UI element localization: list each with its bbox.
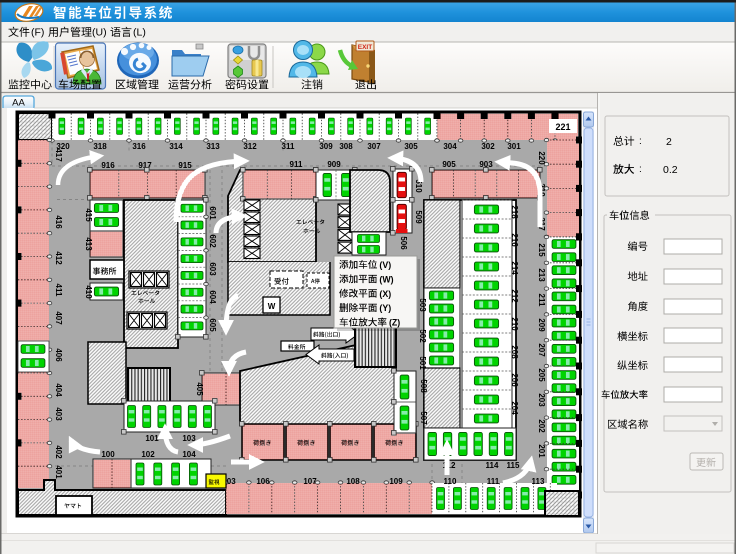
svg-text:211: 211 [537,294,546,307]
svg-text:604: 604 [208,290,217,304]
svg-text:218: 218 [510,205,519,219]
svg-text::: : [639,164,642,175]
svg-text:202: 202 [537,419,546,433]
svg-text:605: 605 [208,318,217,332]
svg-text:417: 417 [54,148,63,162]
svg-text:411: 411 [54,284,63,297]
svg-text:204: 204 [510,401,519,415]
svg-text:(F): (F) [31,27,44,39]
svg-text:312: 312 [243,142,257,151]
svg-text:212: 212 [510,289,519,303]
svg-text:220: 220 [537,151,546,165]
svg-text:410: 410 [84,285,93,299]
svg-text:405: 405 [195,382,204,396]
svg-text:404: 404 [54,383,63,397]
svg-text:416: 416 [54,215,63,229]
svg-text:201: 201 [537,444,546,458]
svg-text:305: 305 [404,142,418,151]
svg-text:203: 203 [537,393,546,407]
svg-text:502: 502 [418,329,427,343]
svg-text:406: 406 [54,348,63,362]
svg-text:(Z): (Z) [389,318,400,328]
svg-text:(V): (V) [379,260,391,270]
svg-text:401: 401 [54,465,63,479]
svg-text:508: 508 [419,379,428,393]
svg-text:W: W [268,302,276,311]
svg-text:221: 221 [555,122,570,132]
svg-text:506: 506 [399,236,408,250]
svg-text:(Y): (Y) [379,303,391,313]
svg-text:100: 100 [101,450,115,459]
svg-text:909: 909 [327,160,341,169]
svg-text:205: 205 [537,368,546,382]
svg-text:216: 216 [510,233,519,247]
svg-text:314: 314 [169,142,183,151]
svg-text:413: 413 [84,237,93,251]
svg-text:(U): (U) [92,27,107,39]
svg-text:104: 104 [182,450,196,459]
svg-text:509: 509 [414,210,423,224]
svg-text:302: 302 [481,142,495,151]
svg-text:602: 602 [208,234,217,248]
svg-text:603: 603 [208,262,217,276]
svg-text:102: 102 [141,450,155,459]
svg-text:214: 214 [510,261,519,275]
svg-text:213: 213 [537,268,546,282]
svg-text:206: 206 [510,373,519,387]
svg-text:903: 903 [479,160,493,169]
svg-text:210: 210 [510,317,519,331]
svg-text:110: 110 [444,477,457,486]
svg-text:407: 407 [54,311,63,325]
svg-text:318: 318 [93,142,107,151]
svg-text:103: 103 [182,434,196,443]
svg-text:215: 215 [537,243,546,257]
svg-text:2: 2 [666,136,672,148]
svg-text:507: 507 [419,411,428,425]
svg-text:301: 301 [507,142,521,151]
svg-text:313: 313 [206,142,220,151]
svg-text::: : [639,136,642,147]
svg-text:209: 209 [537,318,546,332]
svg-text:106: 106 [256,477,270,486]
svg-text:115: 115 [507,461,520,470]
svg-text:415: 415 [84,208,93,222]
svg-text:EXIT: EXIT [358,44,372,51]
svg-text:911: 911 [290,160,303,169]
svg-text:(X): (X) [379,289,391,299]
svg-text:412: 412 [54,251,63,265]
svg-text:601: 601 [208,206,217,220]
svg-text:316: 316 [132,142,146,151]
svg-text:AA: AA [12,98,25,109]
svg-text:(L): (L) [133,27,146,39]
svg-text:114: 114 [486,461,499,470]
svg-text:308: 308 [339,142,353,151]
svg-text:101: 101 [145,434,159,443]
svg-text:113: 113 [532,477,545,486]
svg-text:402: 402 [54,445,63,459]
svg-text:916: 916 [101,161,115,170]
svg-text:108: 108 [346,477,360,486]
svg-text:311: 311 [282,142,295,151]
svg-text:307: 307 [367,142,381,151]
svg-text:208: 208 [510,345,519,359]
svg-text:107: 107 [303,477,317,486]
svg-text:207: 207 [537,343,546,357]
svg-text:111: 111 [487,477,500,486]
svg-text:109: 109 [389,477,403,486]
svg-text:(W): (W) [379,274,393,284]
svg-text:905: 905 [442,160,456,169]
svg-text:304: 304 [443,142,457,151]
svg-text:403: 403 [54,407,63,421]
svg-text:915: 915 [178,161,192,170]
svg-text:309: 309 [319,142,333,151]
svg-text:0.2: 0.2 [663,164,678,176]
